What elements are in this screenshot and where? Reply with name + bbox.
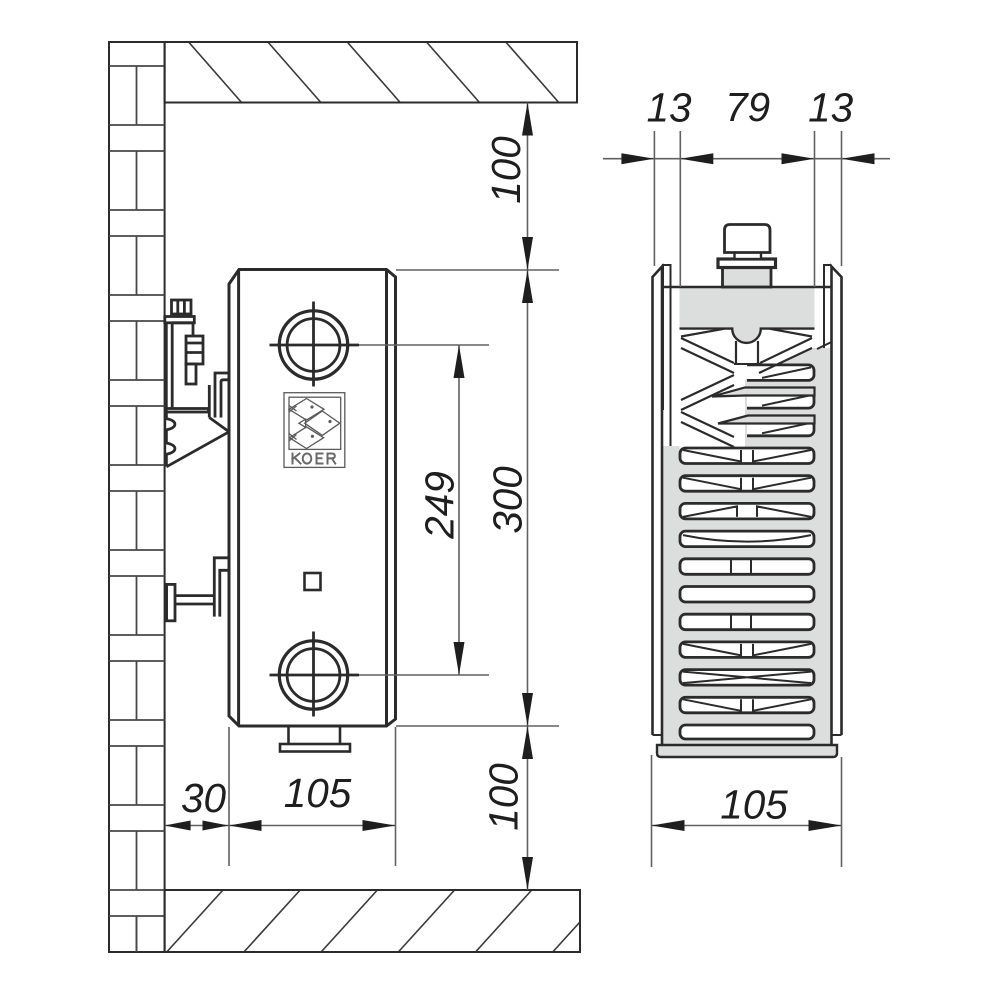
svg-text:100: 100: [481, 763, 527, 831]
svg-text:105: 105: [284, 770, 352, 816]
svg-text:13: 13: [646, 85, 692, 131]
svg-text:30: 30: [181, 775, 227, 821]
svg-text:300: 300: [485, 466, 531, 534]
svg-text:100: 100: [483, 136, 529, 204]
svg-text:249: 249: [417, 471, 463, 540]
svg-text:13: 13: [808, 85, 854, 131]
svg-text:79: 79: [725, 84, 770, 130]
svg-text:105: 105: [720, 782, 788, 828]
